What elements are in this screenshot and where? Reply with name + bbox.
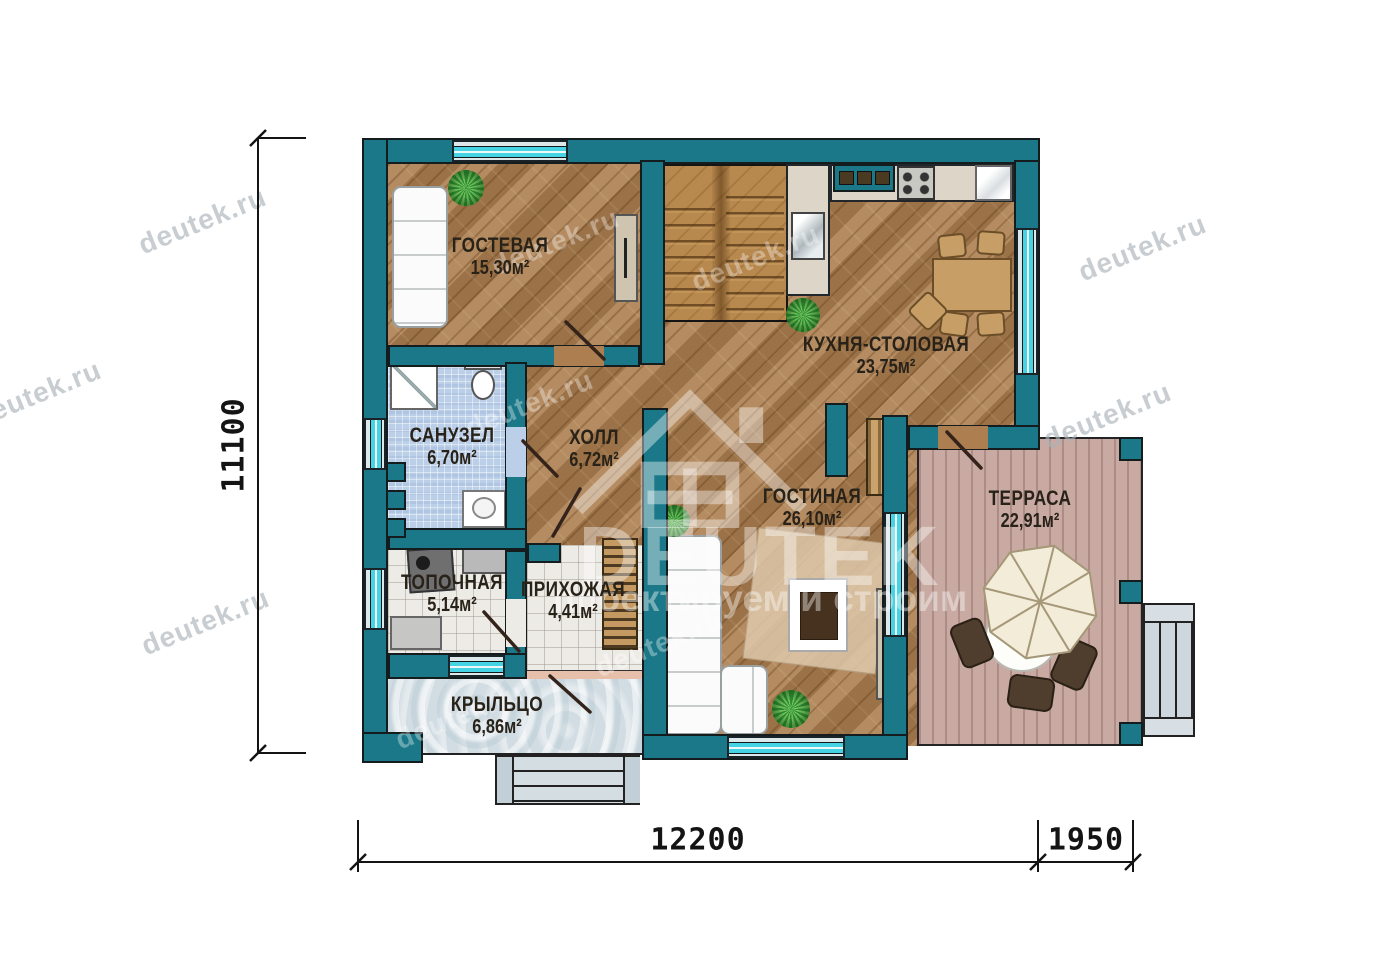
stair-flight-left [661, 208, 715, 318]
terrace-chair [1006, 673, 1056, 713]
door-gap-bath [506, 427, 526, 477]
room-area: 5,14м² [401, 595, 503, 617]
boiler-bench [390, 616, 442, 650]
porch-step-stringer-right [623, 757, 640, 803]
door-gap-guest [554, 346, 604, 366]
room-name: КУХНЯ-СТОЛОВАЯ [803, 334, 969, 357]
window-guest-north [452, 140, 568, 162]
window-boiler-south [448, 655, 505, 677]
room-label-porch: КРЫЛЬЦО 6,86м² [451, 694, 543, 738]
kitchen-stove [897, 166, 935, 200]
room-area: 23,75м² [803, 357, 969, 379]
room-label-entry: ПРИХОЖАЯ 4,41м² [521, 579, 625, 623]
living-plant-south [772, 690, 810, 728]
kitchen-fridge [975, 165, 1012, 201]
room-label-bathroom: САНУЗЕЛ 6,70м² [410, 425, 495, 469]
dining-chair [976, 230, 1006, 256]
window-bath-west [364, 418, 386, 470]
room-label-guest: ГОСТЕВАЯ 15,30м² [452, 235, 549, 279]
room-area: 6,86м² [451, 717, 543, 739]
room-label-hall: ХОЛЛ 6,72м² [569, 427, 619, 471]
watermark-text: deutek.ru [137, 582, 274, 662]
dining-table [932, 258, 1012, 312]
room-name: ТЕРРАСА [989, 488, 1072, 511]
bathroom-sink-basin [472, 497, 496, 519]
dining-chair [976, 311, 1006, 337]
wall-kitchen-living-stub [825, 403, 848, 477]
terrace-post-e [1119, 580, 1143, 604]
room-name: ГОСТЕВАЯ [452, 235, 549, 258]
kitchen-sink [791, 212, 825, 260]
door-gap-terrace [938, 426, 988, 449]
room-area: 4,41м² [521, 602, 625, 624]
watermark-text: deutek.ru [134, 181, 271, 261]
wall-living-west [642, 408, 668, 760]
niche-square [839, 171, 854, 185]
dimension-height-label: 11100 [217, 397, 252, 492]
wall-guest-stairs [640, 160, 665, 365]
porch-step-stringer-left [497, 757, 514, 803]
window-living-terrace [884, 512, 906, 637]
room-area: 22,91м² [989, 511, 1072, 533]
dining-chair [937, 233, 967, 260]
terrace-steps-treads [1145, 621, 1193, 719]
room-area: 6,70м² [410, 448, 495, 470]
window-hall-west [364, 568, 386, 630]
wall-entry-stub [527, 543, 561, 563]
flue-block [386, 518, 406, 538]
guest-room-plant [448, 170, 484, 206]
room-area: 26,10м² [763, 509, 861, 531]
window-living-south [727, 736, 845, 758]
niche-square [857, 171, 872, 185]
room-name: ТОПОЧНАЯ [401, 572, 503, 595]
dimension-width-terrace-label: 1950 [1048, 823, 1124, 858]
toilet-bowl [471, 370, 495, 400]
room-name: САНУЗЕЛ [410, 425, 495, 448]
room-label-kitchen: КУХНЯ-СТОЛОВАЯ 23,75м² [803, 334, 969, 378]
guest-room-sofa [392, 186, 448, 328]
room-name: ПРИХОЖАЯ [521, 579, 625, 602]
flue-block [386, 490, 406, 510]
room-label-boiler: ТОПОЧНАЯ 5,14м² [401, 572, 503, 616]
wall-porch-corner [362, 732, 423, 763]
room-label-terrace: ТЕРРАСА 22,91м² [989, 488, 1072, 532]
porch-steps [495, 755, 640, 805]
room-area: 15,30м² [452, 258, 549, 280]
dimension-width-main-label: 12200 [650, 823, 745, 858]
room-label-living: ГОСТИНАЯ 26,10м² [763, 486, 861, 530]
guest-room-cabinet-handle [624, 238, 627, 278]
niche-square [875, 171, 890, 185]
living-room-sofa-arm [720, 665, 768, 735]
terrace-post-ne [1119, 437, 1143, 461]
stair-center-shadow [712, 166, 730, 320]
room-name: ХОЛЛ [569, 427, 619, 450]
kitchen-plant [786, 298, 820, 332]
watermark-text: deutek.ru [1074, 208, 1211, 288]
room-area: 6,72м² [569, 450, 619, 472]
shower-tray [390, 362, 438, 410]
room-name: ГОСТИНАЯ [763, 486, 861, 509]
wall-bath-south [388, 528, 527, 550]
watermark-text: deutek.ru [0, 354, 106, 434]
room-name: КРЫЛЬЦО [451, 694, 543, 717]
coffee-table-top [800, 592, 838, 640]
stair-flight-right [726, 196, 784, 318]
terrace-post-se [1119, 722, 1143, 746]
floor-plan-canvas: 11100 12200 1950 ГОСТЕВАЯ 15,30м² КУХНЯ-… [0, 0, 1400, 975]
window-kitchen-east [1016, 228, 1038, 375]
boiler-burner [416, 556, 430, 570]
flue-block [386, 462, 406, 482]
terrace-umbrella [978, 540, 1102, 664]
